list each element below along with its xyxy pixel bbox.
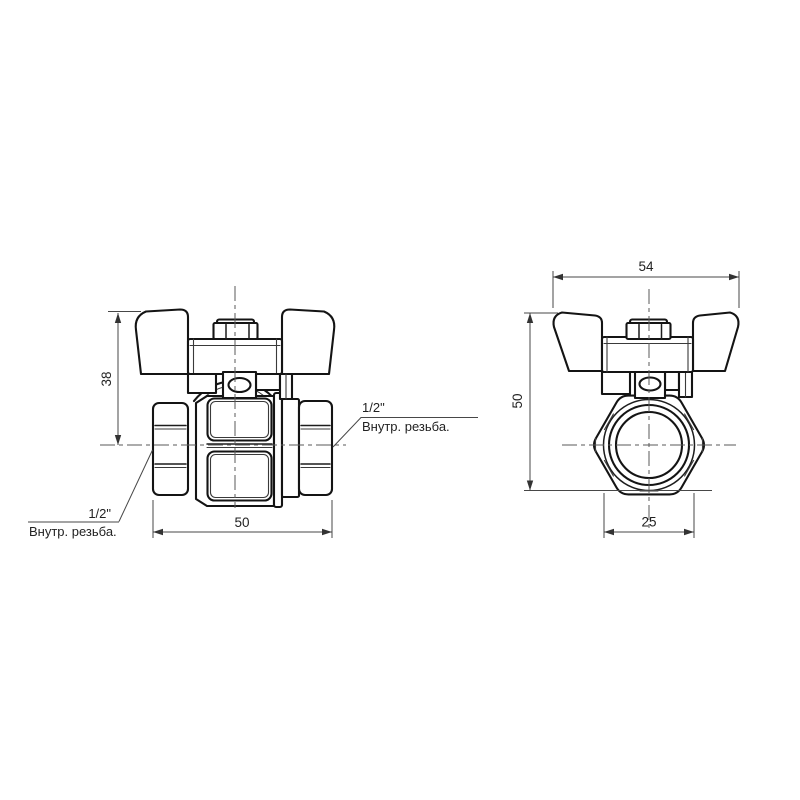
thread-size-left: 1/2" [88, 506, 111, 521]
dim-38-value: 38 [99, 371, 114, 386]
side-view: 38 50 1/2" Внутр. резьба. 1/2" Внутр. ре… [28, 286, 478, 539]
handle-left-wing [136, 310, 188, 375]
dim-50-length-value: 50 [234, 515, 249, 530]
handle-right-wing [282, 310, 334, 375]
hex-fitting-left [153, 403, 188, 495]
thread-label-right: 1/2" Внутр. резьба. [333, 400, 478, 447]
thread-size-right: 1/2" [362, 400, 385, 415]
valve-technical-drawing: 38 50 1/2" Внутр. резьба. 1/2" Внутр. ре… [0, 0, 800, 800]
front-handle-hub [602, 337, 693, 372]
dim-50-height-value: 50 [510, 393, 525, 408]
thread-label-left: 1/2" Внутр. резьба. [28, 450, 153, 539]
union-flange [274, 393, 282, 507]
front-stem-gland [602, 370, 692, 398]
dim-54-value: 54 [638, 259, 654, 274]
valve-body [153, 393, 332, 507]
front-handle-right-wing [693, 313, 738, 372]
front-handle-left-wing [554, 313, 602, 372]
union-collar [282, 399, 299, 497]
dimension-54: 54 [553, 259, 739, 308]
dimension-38: 38 [99, 312, 141, 446]
union-nut [299, 401, 332, 495]
thread-note-right: Внутр. резьба. [362, 419, 450, 434]
drawing-canvas: 38 50 1/2" Внутр. резьба. 1/2" Внутр. ре… [0, 0, 800, 800]
thread-note-left: Внутр. резьба. [29, 524, 117, 539]
front-view: 54 50 25 [510, 259, 739, 538]
dim-25-value: 25 [641, 515, 656, 530]
